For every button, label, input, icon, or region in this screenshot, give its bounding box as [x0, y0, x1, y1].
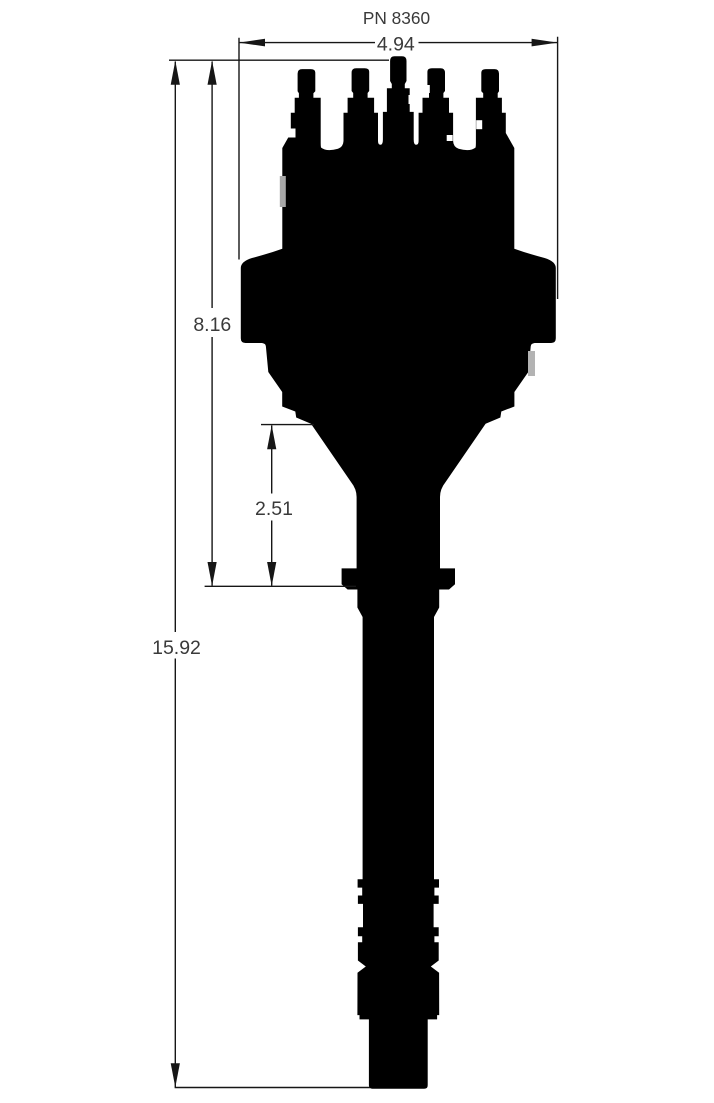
svg-text:8.16: 8.16: [193, 314, 231, 336]
svg-text:4.94: 4.94: [377, 34, 415, 56]
svg-text:PN 8360: PN 8360: [363, 8, 430, 28]
svg-text:15.92: 15.92: [152, 637, 201, 659]
svg-text:2.51: 2.51: [255, 498, 293, 520]
